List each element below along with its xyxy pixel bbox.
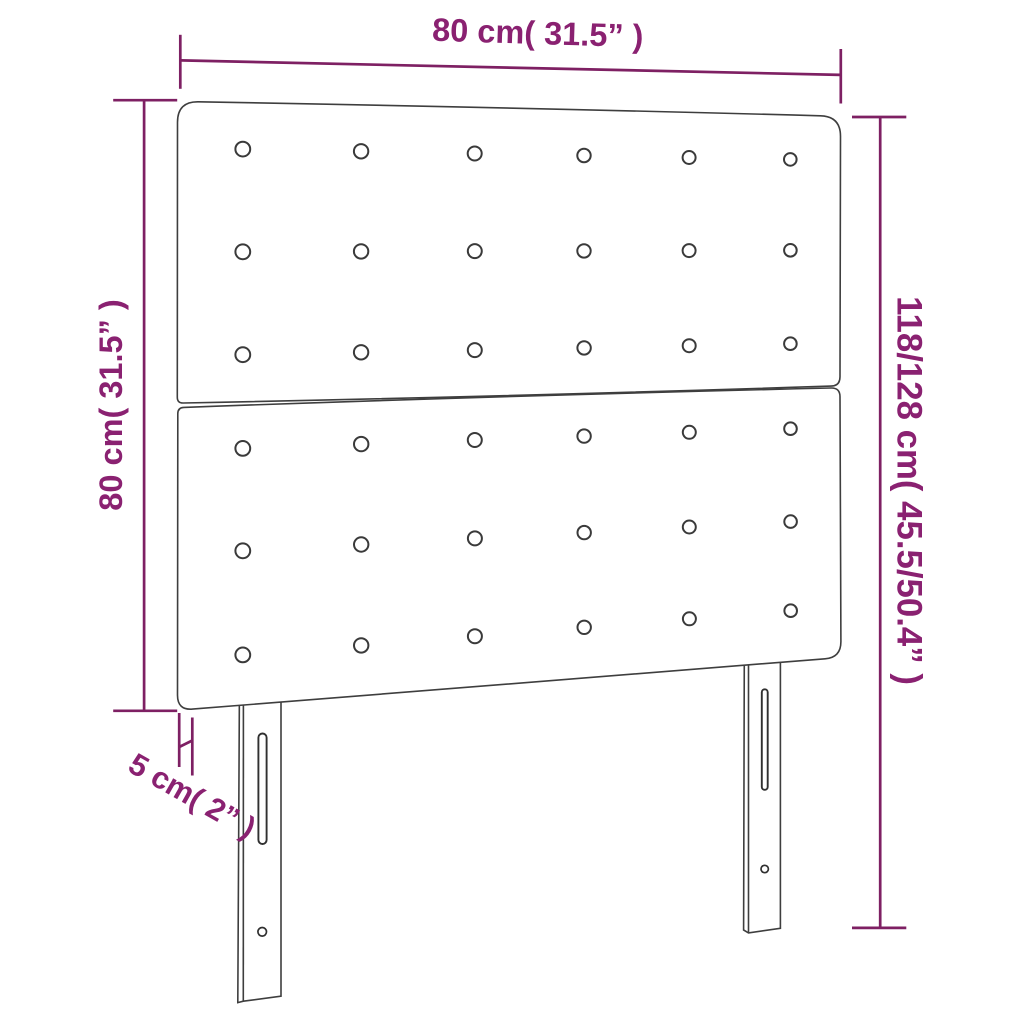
svg-text:118/128 cm( 45.5/50.4” ): 118/128 cm( 45.5/50.4” ) (890, 296, 929, 685)
svg-text:80 cm( 31.5” ): 80 cm( 31.5” ) (93, 299, 129, 510)
svg-text:80 cm( 31.5” ): 80 cm( 31.5” ) (432, 12, 644, 55)
